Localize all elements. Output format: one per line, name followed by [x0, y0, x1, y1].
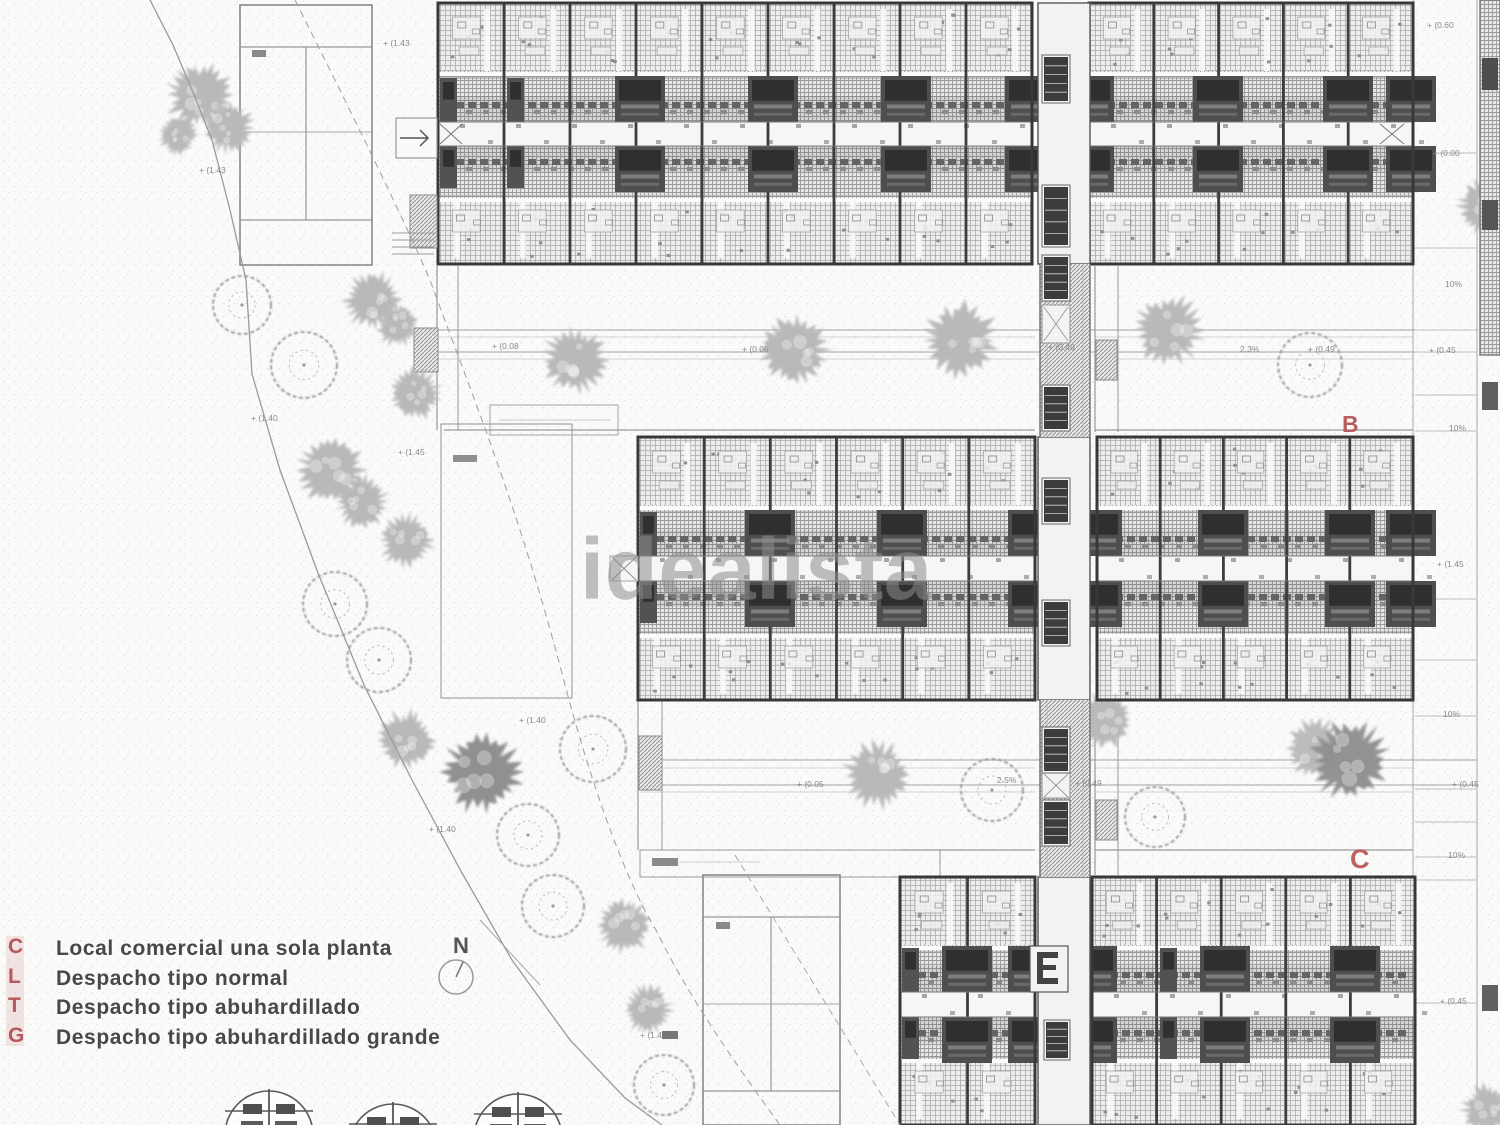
svg-text:+ (0.08: + (0.08 [492, 341, 519, 351]
svg-text:+ (1.40: + (1.40 [519, 715, 546, 725]
svg-text:10%: 10% [1445, 279, 1462, 289]
svg-text:+ (0.49: + (0.49 [1048, 342, 1075, 352]
svg-text:+ (1.43: + (1.43 [199, 165, 226, 175]
svg-text:idealista: idealista [580, 521, 933, 618]
svg-text:N: N [453, 933, 469, 958]
svg-text:+ (0.49: + (0.49 [1075, 778, 1102, 788]
svg-text:Despacho tipo normal: Despacho tipo normal [56, 967, 289, 990]
svg-text:Despacho tipo abuhardillado gr: Despacho tipo abuhardillado grande [56, 1026, 440, 1049]
svg-text:+ (1.40: + (1.40 [251, 413, 278, 423]
svg-text:B: B [1342, 411, 1359, 437]
svg-text:2.5%: 2.5% [997, 775, 1017, 785]
svg-text:+ (0.00: + (0.00 [1433, 148, 1460, 158]
svg-text:+ (0.60: + (0.60 [1427, 20, 1454, 30]
svg-text:Despacho tipo abuhardillado: Despacho tipo abuhardillado [56, 996, 360, 1019]
svg-text:10%: 10% [1448, 850, 1465, 860]
svg-text:+ (1.40: + (1.40 [429, 824, 456, 834]
svg-text:+ (0.45: + (0.45 [1429, 345, 1456, 355]
svg-text:+ (1.45: + (1.45 [1437, 559, 1464, 569]
svg-text:+ (0.05: + (0.05 [797, 779, 824, 789]
svg-text:+ (1.45: + (1.45 [398, 447, 425, 457]
svg-text:2.3%: 2.3% [1240, 344, 1260, 354]
svg-text:C: C [1350, 844, 1370, 874]
svg-text:+ (0.45: + (0.45 [1440, 996, 1467, 1006]
svg-text:10%: 10% [1449, 423, 1466, 433]
svg-text:+ (0.05: + (0.05 [742, 344, 769, 354]
svg-text:+ (1.43: + (1.43 [383, 38, 410, 48]
svg-text:10%: 10% [1443, 709, 1460, 719]
svg-text:+ (0.49: + (0.49 [1308, 344, 1335, 354]
svg-text:Local comercial una sola plant: Local comercial una sola planta [56, 937, 392, 960]
svg-text:+ (0.45: + (0.45 [1452, 779, 1479, 789]
